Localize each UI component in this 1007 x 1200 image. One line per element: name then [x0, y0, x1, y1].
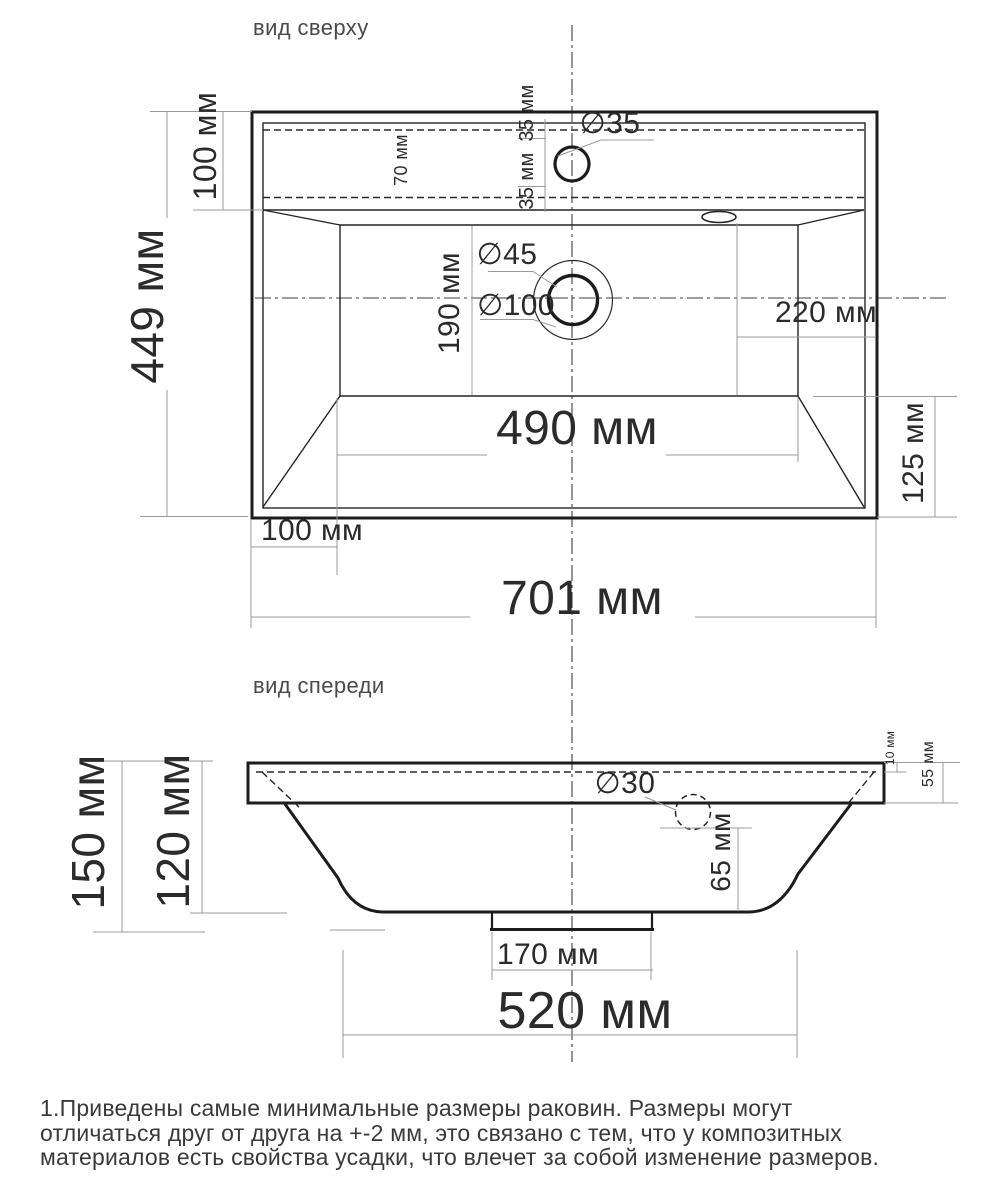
dia-label-drain-inner: ∅45 — [477, 240, 538, 270]
dim-label-faucet-top: 35 мм — [517, 84, 537, 141]
dim-label-shelf-inner: 70 мм — [392, 134, 410, 186]
top-view-title: вид сверху — [253, 17, 369, 39]
front-view-outline — [248, 763, 884, 930]
dim-label-left-offset: 100 мм — [261, 516, 363, 546]
dim-label-overflow-depth: 65 мм — [707, 812, 735, 891]
dim-label-basin-width: 490 мм — [496, 405, 658, 453]
leader-drain-45 — [488, 272, 557, 288]
drain-hole-inner — [549, 276, 598, 325]
footnote-line-2: отличаться друг от друга на +-2 мм, это … — [40, 1121, 879, 1146]
dia-label-drain-outer: ∅100 — [477, 291, 555, 321]
dim-label-basin-depth: 190 мм — [435, 252, 465, 354]
dia-label-overflow-hole: ∅30 — [595, 769, 656, 799]
dim-label-shelf-depth: 100 мм — [189, 92, 221, 201]
dia-label-faucet-hole: ∅35 — [580, 109, 641, 139]
dim-label-overall-height: 150 мм — [65, 754, 111, 909]
dim-label-overall-depth: 449 мм — [124, 228, 170, 383]
front-view-title: вид спереди — [253, 675, 385, 697]
footnote: 1.Приведены самые минимальные размеры ра… — [40, 1096, 879, 1170]
basin-slope-edges — [263, 210, 864, 507]
footnote-line-3: материалов есть свойства усадки, что вле… — [40, 1145, 879, 1170]
rim-section — [248, 763, 884, 803]
dim-label-overflow-to-edge: 220 мм — [775, 298, 877, 328]
overflow-hole-top — [702, 212, 736, 223]
footnote-line-1: 1.Приведены самые минимальные размеры ра… — [40, 1096, 879, 1121]
dim-label-body-height: 120 мм — [150, 753, 196, 908]
dim-label-right-offset: 125 мм — [899, 402, 929, 504]
dim-label-faucet-bottom: 35 мм — [517, 152, 537, 209]
dim-label-overall-width: 701 мм — [501, 575, 663, 623]
dim-label-rim-lip: 10 мм — [884, 731, 896, 765]
basin-bottom-rect — [340, 225, 798, 396]
dim-line-120 — [190, 761, 287, 913]
sink-dimension-drawing: вид сверху 100 мм 449 мм 70 мм 35 мм 35 … — [0, 0, 1007, 1200]
dim-label-drain-stub-width: 170 мм — [497, 940, 599, 970]
dim-label-bottom-width: 520 мм — [497, 985, 672, 1037]
basin-body-profile — [285, 804, 851, 912]
dim-label-rim-height: 55 мм — [921, 741, 937, 787]
